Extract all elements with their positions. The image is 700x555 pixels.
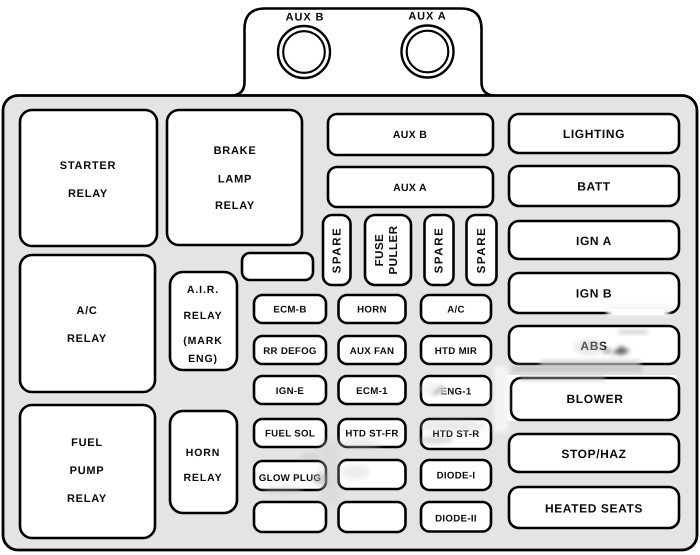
svg-text:RELAY: RELAY	[68, 188, 108, 200]
svg-text:ECM-B: ECM-B	[273, 305, 306, 316]
svg-text:IGN-E: IGN-E	[276, 386, 305, 397]
svg-text:BRAKE: BRAKE	[214, 145, 257, 157]
svg-text:GLOW PLUG: GLOW PLUG	[259, 473, 321, 484]
svg-text:BLOWER: BLOWER	[567, 392, 624, 406]
svg-text:LAMP: LAMP	[218, 174, 252, 186]
svg-text:HORN: HORN	[357, 305, 387, 316]
svg-text:ENG): ENG)	[188, 353, 218, 365]
svg-text:FUEL: FUEL	[71, 437, 103, 449]
svg-text:PUMP: PUMP	[70, 465, 105, 477]
svg-text:A/C: A/C	[76, 305, 97, 317]
svg-text:RELAY: RELAY	[183, 310, 222, 322]
svg-text:AUX B: AUX B	[286, 12, 325, 24]
svg-text:RELAY: RELAY	[215, 200, 255, 212]
svg-text:DIODE-I: DIODE-I	[437, 471, 476, 482]
svg-text:A.I.R.: A.I.R.	[187, 284, 219, 296]
svg-text:STOP/HAZ: STOP/HAZ	[561, 447, 626, 461]
svg-text:ECM-1: ECM-1	[356, 386, 388, 397]
svg-text:AUX A: AUX A	[393, 182, 427, 194]
svg-text:PULLER: PULLER	[388, 225, 400, 274]
svg-text:RELAY: RELAY	[67, 493, 107, 505]
svg-text:AUX A: AUX A	[408, 11, 446, 23]
svg-text:HEATED SEATS: HEATED SEATS	[545, 502, 643, 516]
svg-text:HORN: HORN	[186, 447, 221, 459]
svg-text:FUEL SOL: FUEL SOL	[265, 429, 315, 440]
svg-text:A/C: A/C	[447, 305, 465, 316]
svg-text:SPARE: SPARE	[331, 227, 343, 274]
svg-text:RELAY: RELAY	[183, 472, 222, 484]
svg-text:STARTER: STARTER	[60, 160, 116, 172]
svg-text:IGN B: IGN B	[576, 287, 612, 301]
svg-text:RR DEFOG: RR DEFOG	[263, 346, 317, 357]
svg-text:RELAY: RELAY	[67, 333, 107, 345]
svg-text:FUSE: FUSE	[374, 234, 386, 267]
svg-text:HTD MIR: HTD MIR	[435, 346, 477, 357]
svg-text:BATT: BATT	[577, 180, 611, 194]
svg-text:DIODE-II: DIODE-II	[435, 514, 477, 525]
svg-text:SPARE: SPARE	[476, 227, 488, 274]
svg-text:IGN A: IGN A	[576, 234, 612, 248]
svg-text:AUX FAN: AUX FAN	[350, 346, 395, 357]
svg-text:HTD ST-FR: HTD ST-FR	[345, 429, 398, 440]
svg-text:(MARK: (MARK	[183, 335, 223, 347]
svg-text:AUX B: AUX B	[393, 129, 427, 141]
svg-text:LIGHTING: LIGHTING	[563, 127, 625, 141]
svg-text:SPARE: SPARE	[434, 227, 446, 274]
